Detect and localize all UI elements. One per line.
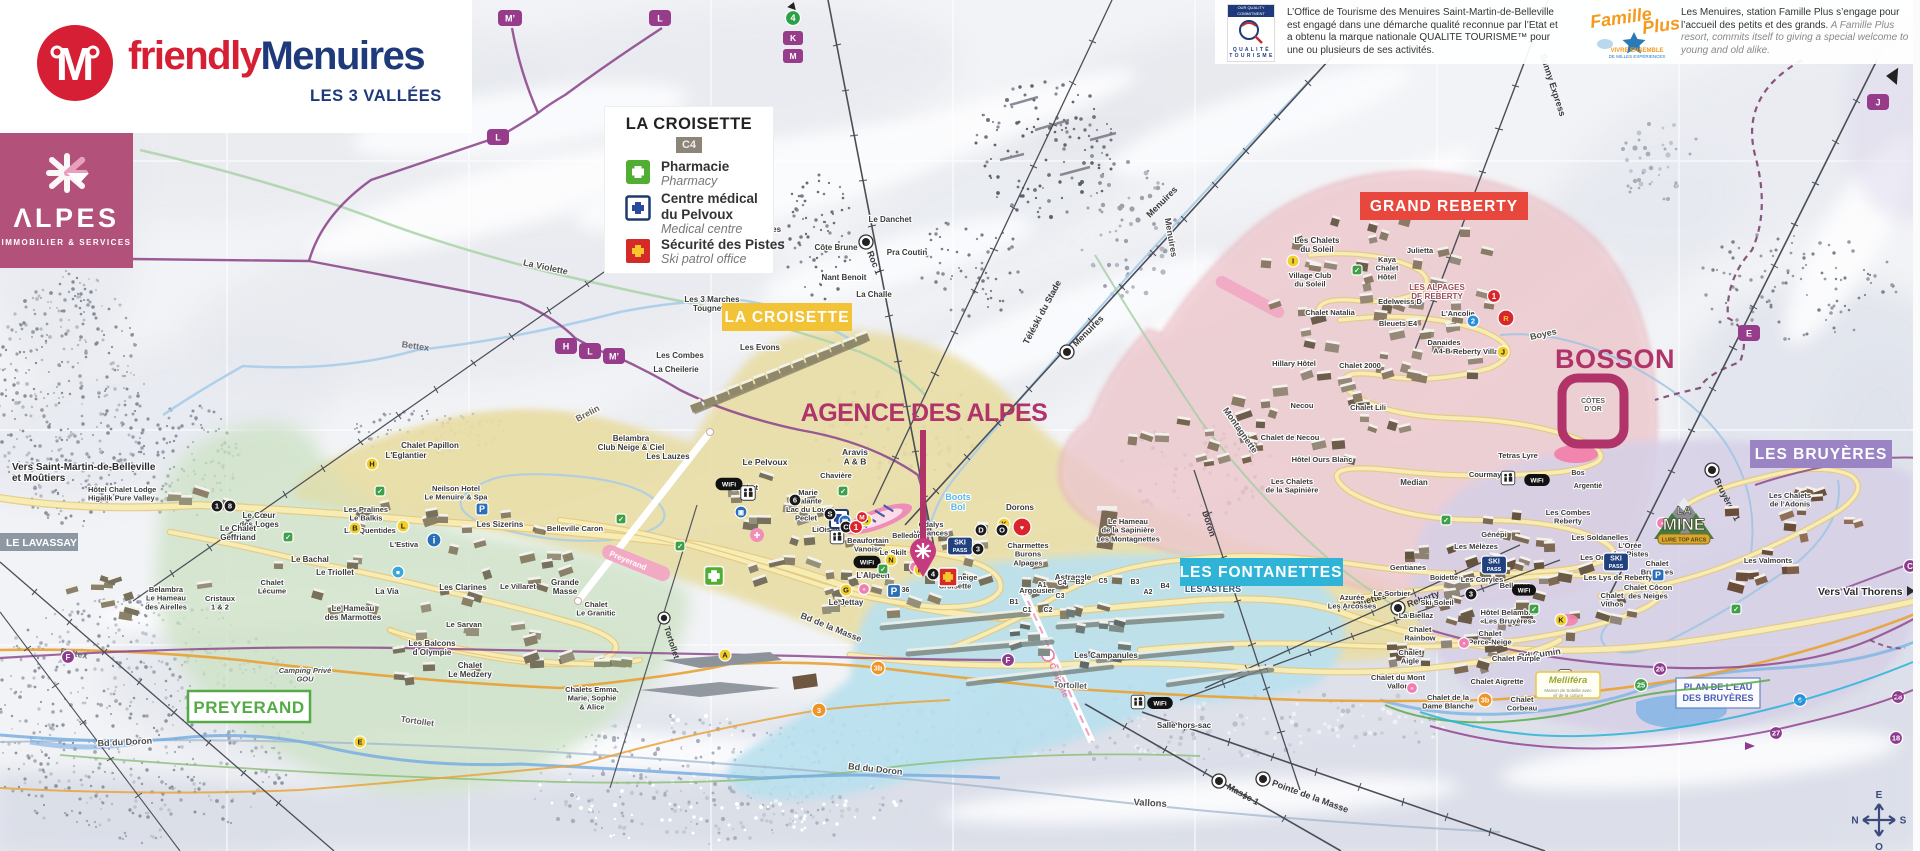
svg-text:D: D [978,526,984,535]
svg-text:Le Granitic: Le Granitic [576,609,615,618]
svg-text:M’: M’ [505,14,515,24]
svg-text:M: M [56,38,94,90]
svg-text:Les Combes: Les Combes [656,351,704,360]
svg-text:N: N [1851,816,1858,827]
svg-text:C1: C1 [1023,607,1032,614]
svg-text:Hôtel Belambra: Hôtel Belambra [1480,608,1536,617]
svg-text:✓: ✓ [1443,518,1449,525]
svg-text:Le Hameau: Le Hameau [332,604,375,613]
svg-text:F: F [1006,656,1011,665]
svg-text:Chalet Lili: Chalet Lili [1350,403,1386,412]
svg-text:WiFi: WiFi [1153,701,1167,708]
svg-text:Higalik Pure Valley: Higalik Pure Valley [88,494,156,503]
svg-text:Lac du Lou: Lac du Lou [786,505,826,514]
svg-text:B1: B1 [1010,599,1019,606]
svg-text:Chalet Papillon: Chalet Papillon [401,441,459,450]
svg-text:●: ● [1410,686,1414,692]
svg-text:Les Balcons: Les Balcons [408,639,456,648]
svg-text:Les Coryles: Les Coryles [1461,575,1504,584]
svg-text:Le Sorbier: Le Sorbier [1373,589,1410,598]
svg-text:L'Eglantier: L'Eglantier [385,451,426,460]
svg-text:«Les Bruyères»: «Les Bruyères» [1480,617,1536,626]
svg-text:Les Valmonts: Les Valmonts [1744,556,1792,565]
svg-text:Gentianes: Gentianes [1390,563,1426,572]
svg-text:et Moûtiers: et Moûtiers [12,473,66,484]
svg-text:Les Evons: Les Evons [740,343,781,352]
svg-text:du Soleil: du Soleil [1294,280,1325,289]
svg-text:de la Sapinière: de la Sapinière [1266,486,1319,495]
svg-text:Le Triollet: Le Triollet [316,568,354,577]
svg-text:Beaufortain: Beaufortain [847,536,889,545]
svg-text:Ski Soleil: Ski Soleil [1420,598,1453,607]
svg-text:Le Jettay: Le Jettay [829,598,864,607]
svg-text:Le Chalet: Le Chalet [220,524,256,533]
svg-text:2: 2 [1471,317,1475,326]
svg-text:✓: ✓ [880,567,886,574]
svg-text:Le Bachal: Le Bachal [291,555,329,564]
svg-text:Chalet: Chalet [1601,591,1624,600]
svg-text:LURE TOP ARCS: LURE TOP ARCS [1662,538,1707,544]
svg-text:WiFi: WiFi [860,560,874,567]
svg-text:Marie: Marie [798,488,818,497]
svg-text:LES FONTANETTES: LES FONTANETTES [1180,564,1343,581]
svg-text:Chalet Aigrette: Chalet Aigrette [1470,677,1523,686]
svg-text:♥: ♥ [1020,525,1024,532]
svg-text:AGENCE DES ALPES: AGENCE DES ALPES [801,399,1048,427]
svg-text:des Airelles: des Airelles [145,602,187,611]
svg-text:✓: ✓ [1733,607,1739,614]
svg-text:Kaya: Kaya [1378,255,1397,264]
svg-text:Belleville Caron: Belleville Caron [547,524,604,533]
svg-text:Boots: Boots [945,492,971,502]
svg-text:Perce-Neige: Perce-Neige [1468,638,1511,647]
svg-text:LES BRUYÈRES: LES BRUYÈRES [1755,446,1888,463]
svg-text:Hôtel: Hôtel [1378,272,1397,281]
svg-text:Chalet: Chalet [1511,695,1534,704]
svg-text:DE MILLES EXPÉRIENCES: DE MILLES EXPÉRIENCES [1609,53,1666,58]
svg-text:Le Menuire & Spa: Le Menuire & Spa [425,493,489,502]
svg-text:S: S [827,510,832,519]
svg-text:Les Sizerins: Les Sizerins [477,520,524,529]
svg-text:Chalet: Chalet [458,661,483,670]
svg-text:WiFi: WiFi [1518,588,1531,594]
svg-text:18: 18 [1892,734,1900,743]
svg-text:Le Cœur: Le Cœur [243,511,276,520]
svg-text:Chalet du Mont: Chalet du Mont [1371,673,1426,682]
svg-text:1: 1 [854,523,859,532]
svg-text:M: M [859,514,864,521]
svg-text:de la Sapinière: de la Sapinière [1102,526,1155,535]
svg-text:O: O [999,526,1005,535]
svg-text:1 & 2: 1 & 2 [211,603,229,612]
svg-text:LE LAVASSAY: LE LAVASSAY [6,537,77,549]
svg-text:C4: C4 [1058,580,1067,587]
svg-text:Belambra: Belambra [613,434,650,443]
svg-text:Le Sarvan: Le Sarvan [446,620,482,629]
svg-text:Lécume: Lécume [258,587,286,596]
svg-text:Chalet: Chalet [261,578,284,587]
svg-text:Dorons: Dorons [1006,503,1035,512]
svg-text:H: H [563,342,570,352]
svg-text:LES ALPAGES: LES ALPAGES [1409,283,1465,292]
svg-text:Chalet de Necou: Chalet de Necou [1261,433,1320,442]
svg-text:Bol: Bol [951,502,966,512]
svg-text:C3: C3 [1056,593,1065,600]
svg-text:Hôtel Chalet Lodge: Hôtel Chalet Lodge [88,485,156,494]
svg-text:6: 6 [793,496,797,505]
svg-text:PREYERAND: PREYERAND [193,698,304,717]
svg-text:Le Villaret: Le Villaret [500,582,536,591]
svg-text:Azurée: Azurée [1339,593,1364,602]
svg-text:R: R [1503,314,1509,323]
svg-text:Chalet: Chalet [1479,629,1502,638]
svg-text:Julietta: Julietta [1407,246,1434,255]
svg-text:Camping Privé: Camping Privé [279,666,332,675]
svg-text:Corbeau: Corbeau [1507,704,1538,713]
svg-text:Peclet: Peclet [795,514,818,523]
svg-text:E: E [357,738,362,747]
svg-text:des Neiges: des Neiges [1628,592,1668,601]
svg-text:Danaides: Danaides [1427,338,1460,347]
svg-text:Vers Saint-Martin-de-Bellevill: Vers Saint-Martin-de-Belleville [12,462,156,473]
svg-text:O: O [1875,842,1883,851]
svg-text:Le Danchet: Le Danchet [868,215,911,224]
svg-text:Burons: Burons [1015,550,1041,559]
svg-text:L'Estiva: L'Estiva [390,540,419,549]
svg-text:Grande: Grande [551,578,580,587]
svg-text:A & B: A & B [844,457,867,467]
svg-text:P: P [1655,570,1661,580]
svg-text:E: E [1746,329,1752,339]
svg-text:Vanoise: Vanoise [854,545,882,554]
svg-text:Les Lauzes: Les Lauzes [646,452,690,461]
svg-text:K: K [1558,616,1564,625]
svg-text:Reberty: Reberty [1554,517,1583,526]
svg-text:WiFi: WiFi [722,482,736,489]
svg-text:Chalet 2000: Chalet 2000 [1339,361,1381,370]
svg-text:vif de la culture: vif de la culture [1553,693,1584,698]
svg-text:Le Pelvoux: Le Pelvoux [743,457,788,467]
svg-text:BOSSON: BOSSON [1555,344,1675,374]
svg-text:3b: 3b [1481,696,1490,705]
svg-text:Chalet: Chalet [585,600,608,609]
svg-text:CÔTES: CÔTES [1581,396,1605,405]
svg-text:d Olympie: d Olympie [413,648,452,657]
svg-text:Le Balkis: Le Balkis [350,514,383,523]
svg-text:Hôtel Ours Blanc: Hôtel Ours Blanc [1292,455,1353,464]
svg-text:GRAND REBERTY: GRAND REBERTY [1370,198,1518,215]
svg-text:■: ■ [396,569,400,576]
svg-text:Edelweiss D: Edelweiss D [1378,297,1422,306]
svg-text:M: M [789,51,796,61]
svg-text:26: 26 [1656,665,1664,674]
svg-text:Club Neige & Ciel: Club Neige & Ciel [598,443,665,452]
svg-text:✓: ✓ [1531,607,1537,614]
svg-text:La Biellaz: La Biellaz [1399,611,1434,620]
svg-text:1: 1 [215,502,219,511]
svg-text:A: A [722,651,728,660]
svg-text:Vithos: Vithos [1601,600,1624,609]
svg-text:C2: C2 [1044,607,1053,614]
svg-text:Plus: Plus [1641,13,1681,38]
svg-text:Geffriand: Geffriand [220,533,256,542]
svg-text:Les Chalets: Les Chalets [1271,477,1313,486]
svg-text:Chavière: Chavière [820,471,852,480]
svg-text:L: L [495,133,501,143]
svg-text:La Challe: La Challe [856,290,892,299]
svg-text:Salle hors-sac: Salle hors-sac [1157,721,1212,730]
svg-text:Tortollet: Tortollet [1053,679,1087,691]
svg-text:Aravis: Aravis [842,447,868,457]
svg-text:4: 4 [790,13,795,23]
svg-text:SKI: SKI [1488,559,1500,566]
svg-text:P: P [891,587,898,598]
svg-text:Côte Brune: Côte Brune [814,243,858,252]
svg-text:Bleuets E4: Bleuets E4 [1379,319,1418,328]
svg-text:Vallons: Vallons [1133,797,1167,810]
svg-text:Le Medzery: Le Medzery [448,670,492,679]
svg-text:Les Combes: Les Combes [1546,508,1591,517]
svg-text:GOU: GOU [296,675,314,684]
svg-text:du Soleil: du Soleil [1300,245,1333,254]
svg-text:C5: C5 [1099,578,1108,585]
svg-text:B4: B4 [1161,583,1170,590]
svg-text:B: B [352,524,358,533]
svg-text:La Cheilerie: La Cheilerie [653,365,699,374]
svg-text:D’OR: D’OR [1584,406,1602,413]
svg-text:✓: ✓ [1354,268,1360,275]
svg-text:P: P [479,504,485,514]
svg-text:SKI: SKI [954,540,966,547]
svg-text:B2: B2 [1076,579,1085,586]
svg-text:Neilson Hotel: Neilson Hotel [432,484,480,493]
svg-text:A2: A2 [1144,589,1153,596]
svg-text:E: E [1876,790,1883,801]
svg-text:✓: ✓ [285,535,291,542]
svg-text:& Alice: & Alice [579,702,604,711]
svg-text:Le Hameau: Le Hameau [146,594,186,603]
svg-text:Bos: Bos [1571,470,1584,477]
svg-text:Chalet de la: Chalet de la [1427,693,1470,702]
svg-text:Boídette: Boídette [1430,575,1458,582]
svg-text:Argentié: Argentié [1574,483,1603,490]
svg-text:3b: 3b [874,664,883,673]
svg-text:H: H [369,460,374,469]
svg-text:●: ● [862,587,866,593]
svg-text:8: 8 [228,502,232,511]
svg-text:de l’Adonis: de l’Adonis [1770,500,1810,509]
svg-text:Le Hameau: Le Hameau [1108,517,1148,526]
svg-text:Les Chalets: Les Chalets [1295,236,1340,245]
svg-text:✓: ✓ [377,489,383,496]
svg-text:1: 1 [1492,292,1497,301]
svg-text:Les 3 Marches: Les 3 Marches [684,295,740,304]
svg-text:✓: ✓ [677,544,683,551]
svg-text:Necou: Necou [1291,401,1314,410]
svg-text:Chalet: Chalet [1376,264,1399,273]
svg-text:Génépi: Génépi [1481,530,1506,539]
svg-text:SKI: SKI [1610,556,1622,563]
svg-text:PASS: PASS [953,548,968,554]
svg-text:Belambra: Belambra [149,585,184,594]
svg-text:3: 3 [1469,590,1473,599]
svg-text:S: S [1900,816,1907,827]
svg-text:J: J [1875,98,1880,108]
svg-text:Chalet: Chalet [1646,559,1669,568]
svg-text:Les Montagnettes: Les Montagnettes [1096,534,1160,543]
svg-text:Les Clarines: Les Clarines [439,583,487,592]
svg-text:i: i [433,536,436,547]
svg-text:Cristaux: Cristaux [205,594,236,603]
svg-text:Chalet Natalia: Chalet Natalia [1305,308,1355,317]
svg-text:L: L [587,347,593,357]
svg-text:Tetras Lyre: Tetras Lyre [1498,451,1538,460]
svg-text:Chalet: Chalet [1409,625,1432,634]
svg-text:L: L [401,522,406,531]
svg-text:Rainbow: Rainbow [1404,634,1435,643]
svg-text:25: 25 [1637,681,1645,690]
svg-text:K: K [790,33,797,43]
svg-text:PASS: PASS [1487,567,1502,573]
svg-text:MINE: MINE [1663,515,1706,534]
svg-text:Melliféra: Melliféra [1549,675,1588,686]
svg-text:Nant Benoit: Nant Benoit [822,273,867,282]
svg-text:Charmettes: Charmettes [1007,541,1048,550]
svg-text:Masse: Masse [553,587,578,596]
svg-text:Les Chalets: Les Chalets [1769,491,1811,500]
svg-text:La Via: La Via [375,587,399,596]
svg-text:DES BRUYÈRES: DES BRUYÈRES [1682,693,1753,703]
svg-text:Les Campanules: Les Campanules [1074,651,1138,660]
svg-text:J: J [1501,348,1505,357]
svg-text:L'Orée: L'Orée [1618,541,1641,550]
svg-text:des Marmottes: des Marmottes [325,613,382,622]
svg-text:F: F [66,653,71,662]
svg-text:WiFi: WiFi [1530,478,1544,485]
svg-text:Chalet Purple: Chalet Purple [1492,654,1540,663]
svg-text:Village Club: Village Club [1289,271,1332,280]
svg-text:PASS: PASS [1609,564,1624,570]
svg-text:3: 3 [817,706,821,715]
svg-text:Pra Coutin: Pra Coutin [887,248,928,257]
svg-text:✓: ✓ [618,517,624,524]
svg-text:Les Mélèzes: Les Mélèzes [1454,542,1498,551]
svg-text:Aigle: Aigle [1401,657,1419,666]
svg-text:LA CROISETTE: LA CROISETTE [724,309,849,326]
svg-text:Alpages: Alpages [1013,558,1042,567]
svg-text:Median: Median [1400,478,1428,487]
svg-text:Dame Blanche: Dame Blanche [1422,702,1474,711]
svg-text:✓: ✓ [840,489,846,496]
svg-text:A1: A1 [1038,582,1047,589]
svg-text:Vers Val Thorens: Vers Val Thorens [1818,586,1903,598]
svg-text:N: N [888,556,893,565]
svg-text:C: C [843,523,849,532]
svg-text:●: ● [1462,641,1466,647]
svg-text:▣: ▣ [738,509,745,516]
svg-text:M’: M’ [609,352,619,362]
svg-text:Les Pralines: Les Pralines [344,505,388,514]
svg-text:I: I [1292,257,1294,266]
svg-text:Les Arcosses: Les Arcosses [1328,602,1377,611]
svg-text:L: L [657,14,663,24]
svg-text:G: G [843,586,849,595]
svg-text:Chalets Emma,: Chalets Emma, [565,685,619,694]
svg-text:Marie, Sophie: Marie, Sophie [568,694,617,703]
svg-text:Chalet Côcon: Chalet Côcon [1624,583,1673,592]
svg-text:B3: B3 [1131,579,1140,586]
svg-text:Hillary Hôtel: Hillary Hôtel [1272,359,1316,368]
svg-text:3: 3 [976,545,980,554]
svg-text:Chalet: Chalet [1399,648,1422,657]
